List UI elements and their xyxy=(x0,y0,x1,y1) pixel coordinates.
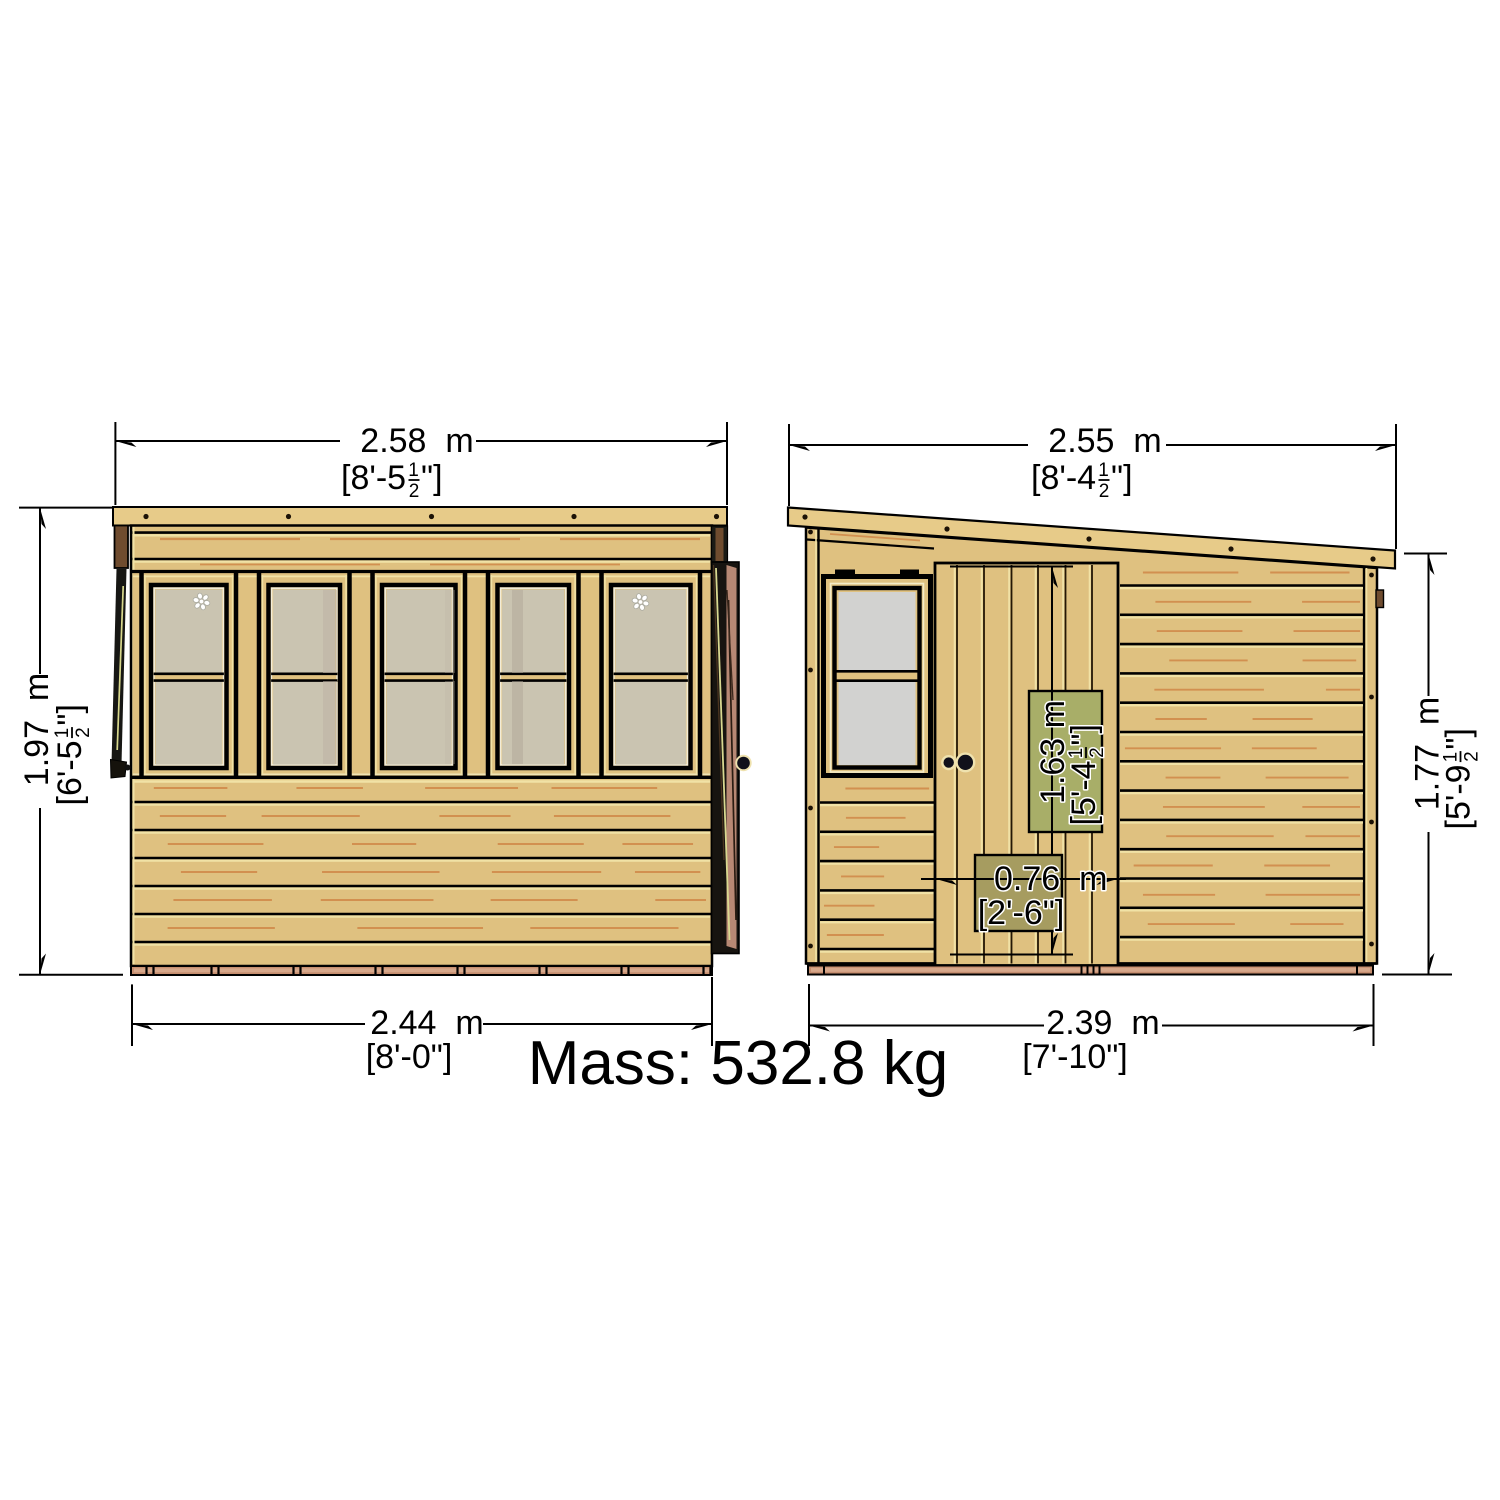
svg-text:1: 1 xyxy=(1098,460,1109,481)
svg-text:[8'-5: [8'-5 xyxy=(341,459,406,497)
svg-text:[8'-4: [8'-4 xyxy=(1031,459,1096,497)
svg-text:2: 2 xyxy=(1462,751,1483,762)
svg-text:"]: "] xyxy=(1440,728,1478,750)
svg-text:2.58 m: 2.58 m xyxy=(360,422,473,460)
svg-text:"]: "] xyxy=(1111,459,1133,497)
svg-text:[2'-6"]: [2'-6"] xyxy=(978,894,1065,932)
svg-text:[5'-4: [5'-4 xyxy=(1065,760,1103,825)
svg-text:1: 1 xyxy=(1441,752,1462,763)
svg-text:"]: "] xyxy=(1065,724,1103,746)
svg-text:2: 2 xyxy=(1099,481,1110,502)
svg-text:2: 2 xyxy=(409,481,420,502)
svg-text:Mass: 532.8 kg: Mass: 532.8 kg xyxy=(528,1029,948,1098)
svg-text:2.55 m: 2.55 m xyxy=(1048,422,1161,460)
svg-text:"]: "] xyxy=(421,459,443,497)
svg-text:[7'-10"]: [7'-10"] xyxy=(1022,1038,1128,1076)
svg-text:[6'-5: [6'-5 xyxy=(51,740,89,805)
svg-text:1: 1 xyxy=(408,460,419,481)
svg-text:1: 1 xyxy=(52,728,73,739)
svg-text:0.76 m: 0.76 m xyxy=(994,860,1107,898)
svg-text:[8'-0"]: [8'-0"] xyxy=(366,1038,453,1076)
svg-text:2: 2 xyxy=(1087,747,1108,758)
svg-text:2.44 m: 2.44 m xyxy=(370,1004,483,1042)
svg-text:[5'-9: [5'-9 xyxy=(1440,764,1478,829)
svg-text:1: 1 xyxy=(1066,748,1087,759)
svg-text:2: 2 xyxy=(73,727,94,738)
svg-text:"]: "] xyxy=(51,704,89,726)
svg-text:2.39 m: 2.39 m xyxy=(1046,1004,1159,1042)
